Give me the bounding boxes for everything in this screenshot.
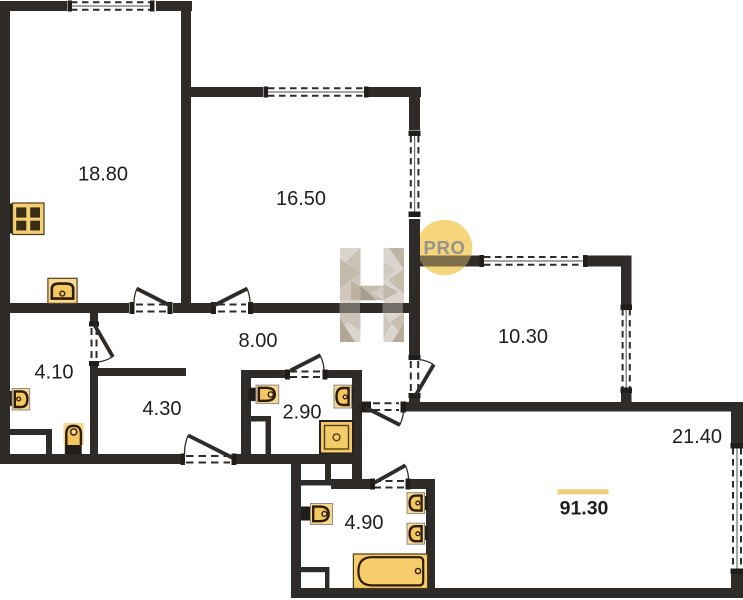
svg-text:4.10: 4.10 <box>35 362 74 384</box>
svg-text:PRO: PRO <box>424 237 466 258</box>
svg-text:8.00: 8.00 <box>239 330 278 352</box>
svg-text:4.30: 4.30 <box>143 398 182 420</box>
svg-text:91.30: 91.30 <box>560 498 609 520</box>
svg-text:4.90: 4.90 <box>345 512 384 534</box>
svg-text:16.50: 16.50 <box>276 188 326 210</box>
svg-text:10.30: 10.30 <box>498 326 548 348</box>
svg-text:18.80: 18.80 <box>78 164 128 186</box>
svg-text:21.40: 21.40 <box>672 426 722 448</box>
svg-text:2.90: 2.90 <box>283 402 322 424</box>
